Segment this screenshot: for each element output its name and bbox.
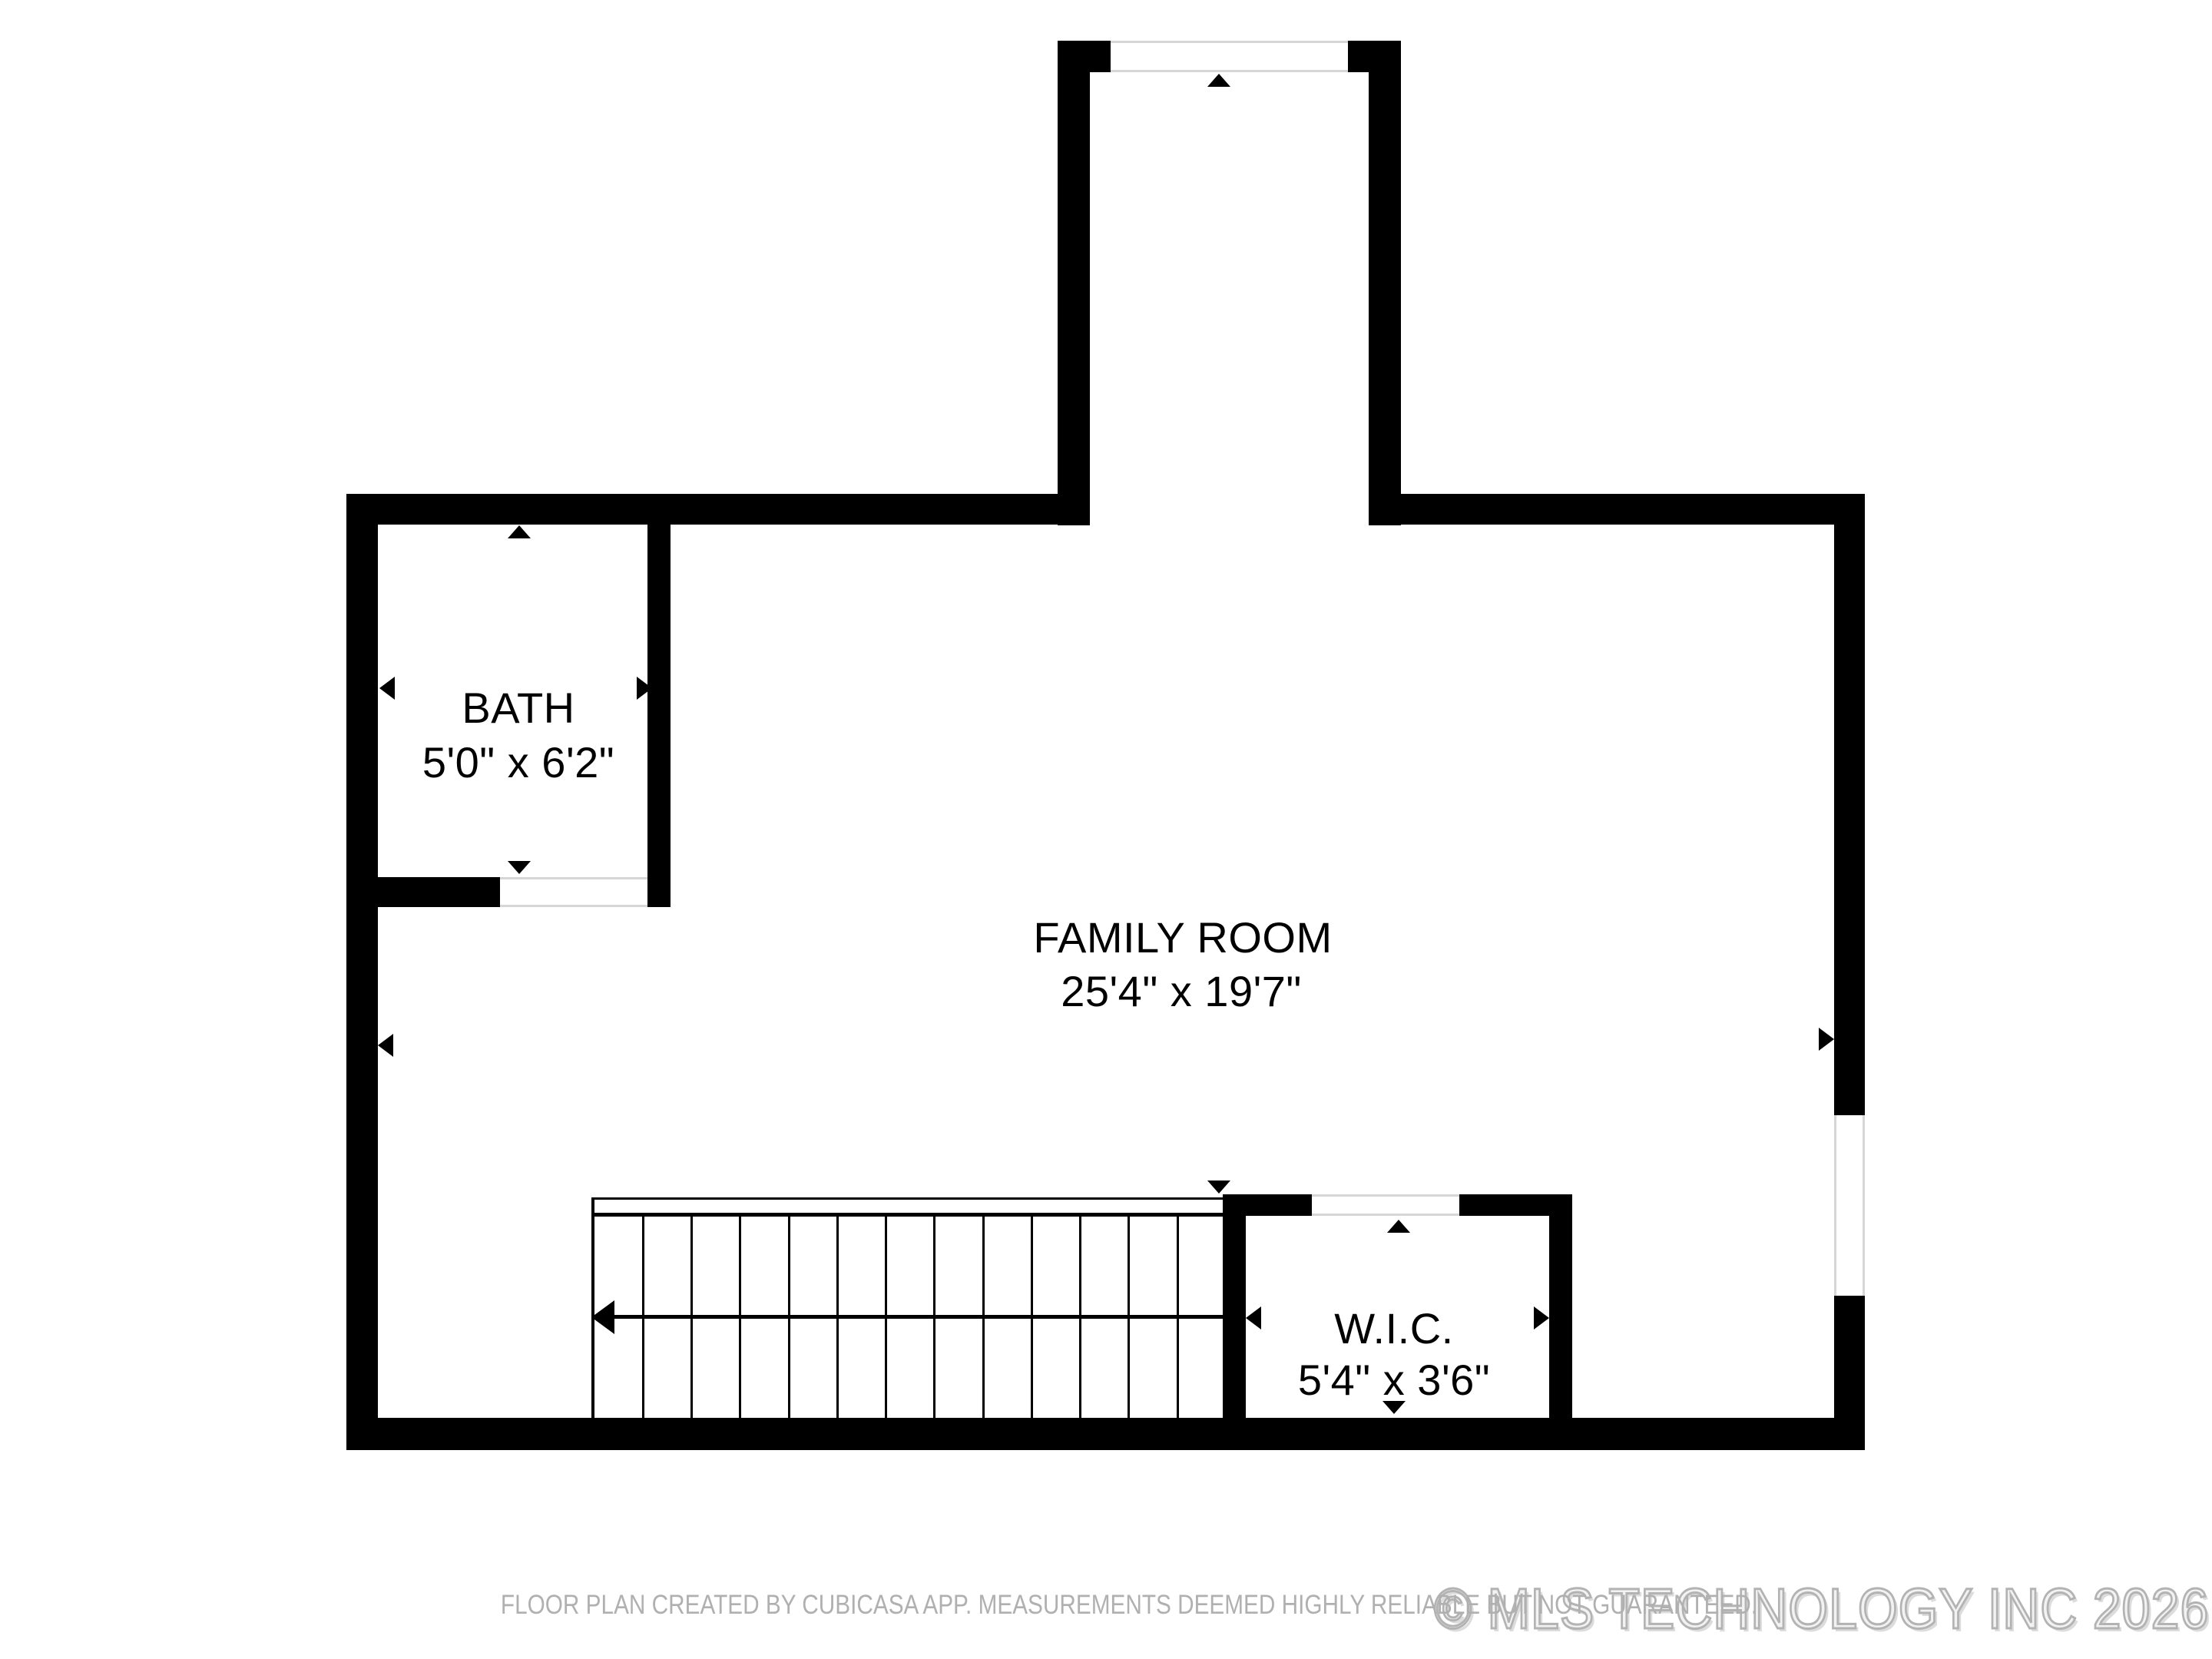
bath-left-arrow-icon <box>379 677 395 700</box>
family-room-dimensions: 25'4" x 19'7" <box>1061 970 1302 1013</box>
wall-left-exterior <box>346 494 378 1450</box>
footer-disclaimer: FLOOR PLAN CREATED BY CUBICASA APP. MEAS… <box>501 1591 1757 1618</box>
wic-left-arrow-icon <box>1246 1306 1261 1330</box>
wall-bath-right <box>647 525 671 907</box>
wall-bath-bottom <box>378 877 500 907</box>
wall-wic-left <box>1223 1194 1246 1418</box>
wic-room-label: W.I.C. <box>1334 1307 1453 1350</box>
wic-room-dimensions: 5'4" x 3'6" <box>1298 1359 1490 1402</box>
family-room-label: FAMILY ROOM <box>1033 916 1332 959</box>
wall-bottom-exterior <box>346 1418 1865 1450</box>
stair-landing-strip <box>591 1197 1223 1217</box>
stair-direction-arrow-icon <box>591 1300 614 1334</box>
wall-top-left-segment <box>346 494 1090 525</box>
wall-right-exterior <box>1834 494 1865 1450</box>
wall-top-right-segment <box>1401 494 1865 525</box>
family-room-right-arrow-icon <box>1819 1028 1834 1051</box>
wall-entry-jamb-left <box>1090 41 1111 72</box>
bath-room-label: BATH <box>462 687 575 730</box>
stair-direction-line <box>614 1315 1223 1319</box>
bath-down-arrow-icon <box>508 861 531 874</box>
family-room-left-arrow-icon <box>378 1034 393 1057</box>
entry-door-opening <box>1111 41 1348 72</box>
wall-entry-right <box>1369 41 1401 525</box>
family-room-down-arrow-icon <box>1207 1181 1230 1194</box>
wic-door-opening <box>1312 1194 1459 1216</box>
bath-room-dimensions: 5'0" x 6'2" <box>422 741 614 784</box>
wic-up-arrow-icon <box>1387 1220 1410 1233</box>
bath-door-opening <box>500 877 647 907</box>
wall-entry-jamb-right <box>1348 41 1369 72</box>
right-wall-window <box>1834 1115 1865 1296</box>
bath-right-arrow-icon <box>637 677 652 700</box>
floor-plan: BATH 5'0" x 6'2" FAMILY ROOM 25'4" x 19'… <box>0 0 2212 1659</box>
wall-entry-left <box>1058 41 1090 525</box>
wall-wic-right <box>1549 1194 1572 1418</box>
wall-wic-top-left <box>1246 1194 1312 1216</box>
entry-up-arrow-icon <box>1207 74 1230 87</box>
bath-up-arrow-icon <box>508 525 531 538</box>
wic-right-arrow-icon <box>1534 1306 1549 1330</box>
